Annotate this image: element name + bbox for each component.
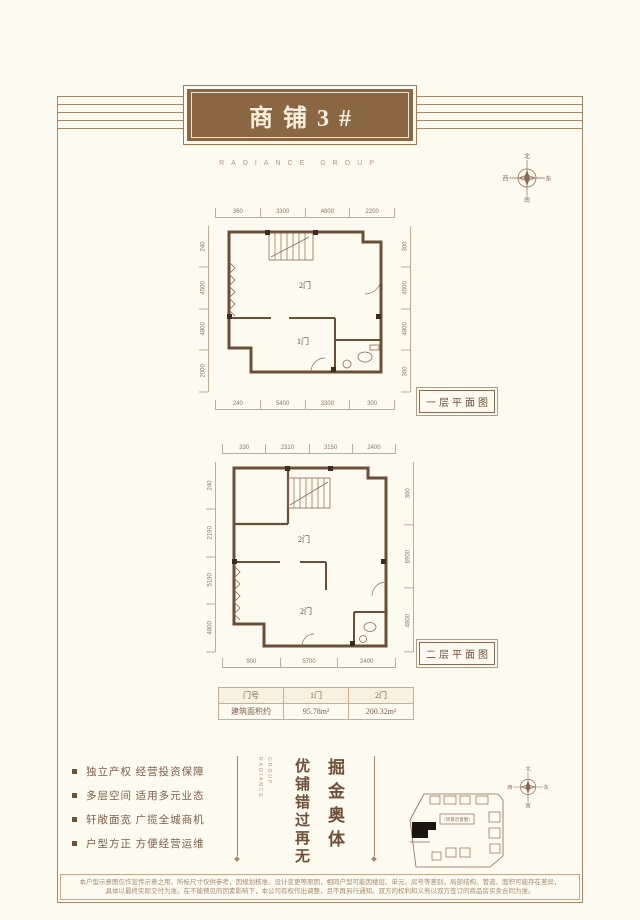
area-table: 门号 1门 2门 建筑面积约 95.78m² 200.32m² (218, 687, 414, 720)
feature-item: 多层空间 适用多元业态 (72, 786, 205, 804)
section-divider-left (237, 756, 238, 856)
band-line (416, 104, 582, 105)
band-line (57, 96, 184, 97)
dims-bottom-second: 900 5700 2400 (222, 658, 396, 668)
dim-value: 4800 (404, 589, 413, 652)
band-line (416, 120, 582, 121)
brand-vertical-group: GROUP (266, 757, 272, 799)
dim-value: 4500 (199, 268, 208, 310)
dim-value: 4800 (206, 605, 215, 653)
dim-value: 5190 (206, 557, 215, 605)
floorplan-first: 360 3300 4800 2200 240 4500 4800 2000 30… (195, 200, 413, 416)
title-inner-frame: 商铺3# (191, 92, 409, 138)
dim-value: 300 (401, 351, 410, 393)
first-floor-plan-tag: 一层平面图 (419, 390, 495, 413)
room-label-upper-first: 2门 (299, 280, 311, 290)
frame-bottom-line (57, 902, 583, 903)
disclaimer-line-1: 本户型示意图仅作宣传示意之用，所标尺寸仅供参考，因规划核准、设计变更等原因，相同… (71, 878, 569, 887)
compass-south-label: 南 (524, 196, 530, 204)
row-label-area: 建筑面积约 (219, 704, 284, 720)
bullet-square-icon (72, 793, 77, 798)
brochure-page: 商铺3# RADIANCE GROUP 北 南 西 东 360 3300 480… (0, 0, 640, 920)
dims-right-second: 300 6900 4800 (404, 462, 414, 652)
dim-value: 240 (199, 226, 208, 268)
col-door-number: 门号 (219, 688, 284, 704)
dim-value: 300 (350, 400, 395, 409)
second-floor-plan-tag: 二层平面图 (419, 642, 495, 665)
col-door-2: 2门 (349, 688, 414, 704)
band-line (416, 128, 582, 129)
dim-value: 4800 (199, 309, 208, 351)
feature-text: 轩敞面宽 广揽全城商机 (86, 812, 205, 827)
floorplan-first-drawing: 2门 1门 (215, 226, 395, 392)
dim-value: 330 (222, 444, 266, 453)
bullet-square-icon (72, 841, 77, 846)
brand-vertical-radiance: RADIANCE (257, 757, 263, 799)
dim-value: 2000 (199, 351, 208, 393)
highlighted-building-3 (412, 822, 436, 838)
room-label-lower-second: 2门 (300, 606, 312, 616)
band-line (57, 120, 184, 121)
table-header-row: 门号 1门 2门 (219, 688, 414, 704)
dim-value: 3150 (310, 444, 353, 453)
feature-text: 独立产权 经营投资保障 (86, 764, 205, 779)
dim-value: 2400 (338, 658, 396, 667)
site-plan-label: （项目示意图） (441, 816, 473, 823)
band-line (57, 112, 184, 113)
dim-value: 6900 (404, 525, 413, 588)
dim-value: 4800 (401, 309, 410, 351)
feature-item: 户型方正 方便经营运维 (72, 834, 205, 852)
dim-value: 300 (401, 226, 410, 268)
divider-tip (234, 856, 240, 862)
floorplan-second: 330 2310 3150 2400 240 2190 5190 4800 30… (200, 436, 418, 670)
dim-value: 900 (222, 658, 281, 667)
band-line (416, 96, 582, 97)
dim-value: 3300 (306, 400, 351, 409)
bullet-square-icon (72, 769, 77, 774)
compass-rose-bottom: 北 南 西 东 (506, 765, 550, 809)
slogan-column-left: 优铺错过再无 (291, 758, 312, 866)
brand-vertical-text: RADIANCE GROUP (257, 757, 272, 799)
table-area-row: 建筑面积约 95.78m² 200.32m² (219, 704, 414, 720)
compass-east-label: 东 (545, 175, 551, 183)
dim-value: 4500 (401, 268, 410, 310)
compass-west-label: 西 (502, 176, 508, 183)
frame-left-line (57, 96, 58, 902)
band-line (57, 128, 184, 129)
brand-subtitle: RADIANCE GROUP (187, 160, 413, 167)
dims-top-second: 330 2310 3150 2400 (222, 444, 396, 454)
area-door-1: 95.78m² (284, 704, 349, 720)
band-line (57, 104, 184, 105)
dim-value: 2310 (266, 444, 309, 453)
dims-left-first: 240 4500 4800 2000 (199, 226, 209, 392)
dim-value: 5700 (281, 658, 339, 667)
floorplan-second-drawing: 2门 2门 (222, 462, 396, 652)
dims-left-second: 240 2190 5190 4800 (206, 462, 216, 652)
compass-west-label: 西 (507, 785, 512, 791)
feature-item: 独立产权 经营投资保障 (72, 762, 205, 780)
title-banner: 商铺3# (187, 89, 413, 141)
slogan-column-right: 掘金奥体 (322, 758, 347, 854)
dim-value: 5400 (261, 400, 306, 409)
dims-top-first: 360 3300 4800 2200 (215, 208, 395, 218)
dim-value: 240 (206, 462, 215, 510)
feature-item: 轩敞面宽 广揽全城商机 (72, 810, 205, 828)
room-label-lower-first: 1门 (297, 336, 309, 346)
compass-south-label: 南 (525, 802, 530, 809)
area-door-2: 200.32m² (349, 704, 414, 720)
feature-list: 独立产权 经营投资保障 多层空间 适用多元业态 轩敞面宽 广揽全城商机 户型方正… (72, 762, 205, 858)
divider-tip (371, 856, 377, 862)
disclaimer-box: 本户型示意图仅作宣传示意之用，所标尺寸仅供参考，因规划核准、设计变更等原因，相同… (60, 874, 580, 900)
dim-value: 360 (215, 208, 261, 217)
feature-text: 户型方正 方便经营运维 (86, 836, 205, 851)
compass-east-label: 东 (544, 784, 549, 791)
bullet-square-icon (72, 817, 77, 822)
dim-value: 4800 (306, 208, 351, 217)
section-divider-right (374, 756, 375, 856)
disclaimer-line-2: 具体以最终实际交付为准。在不能预见的因素影响下，本公司有权作出调整，且不再另行通… (71, 887, 569, 896)
page-title: 商铺3# (239, 98, 361, 133)
site-plan-map: （项目示意图） (402, 786, 508, 872)
feature-text: 多层空间 适用多元业态 (86, 788, 205, 803)
room-label-upper-second: 2门 (298, 534, 310, 544)
compass-north-label: 北 (524, 153, 530, 161)
dims-right-first: 300 4500 4800 300 (401, 226, 411, 392)
band-line (416, 112, 582, 113)
dim-value: 300 (404, 462, 413, 525)
dim-value: 2190 (206, 510, 215, 558)
dim-value: 2200 (350, 208, 395, 217)
dim-value: 2400 (353, 444, 396, 453)
dim-value: 3300 (261, 208, 306, 217)
dim-value: 240 (215, 400, 261, 409)
frame-right-line (582, 96, 583, 902)
compass-north-label: 北 (525, 766, 530, 773)
dims-bottom-first: 240 5400 3300 300 (215, 400, 395, 410)
compass-rose-top: 北 南 西 东 (501, 152, 553, 204)
col-door-1: 1门 (284, 688, 349, 704)
